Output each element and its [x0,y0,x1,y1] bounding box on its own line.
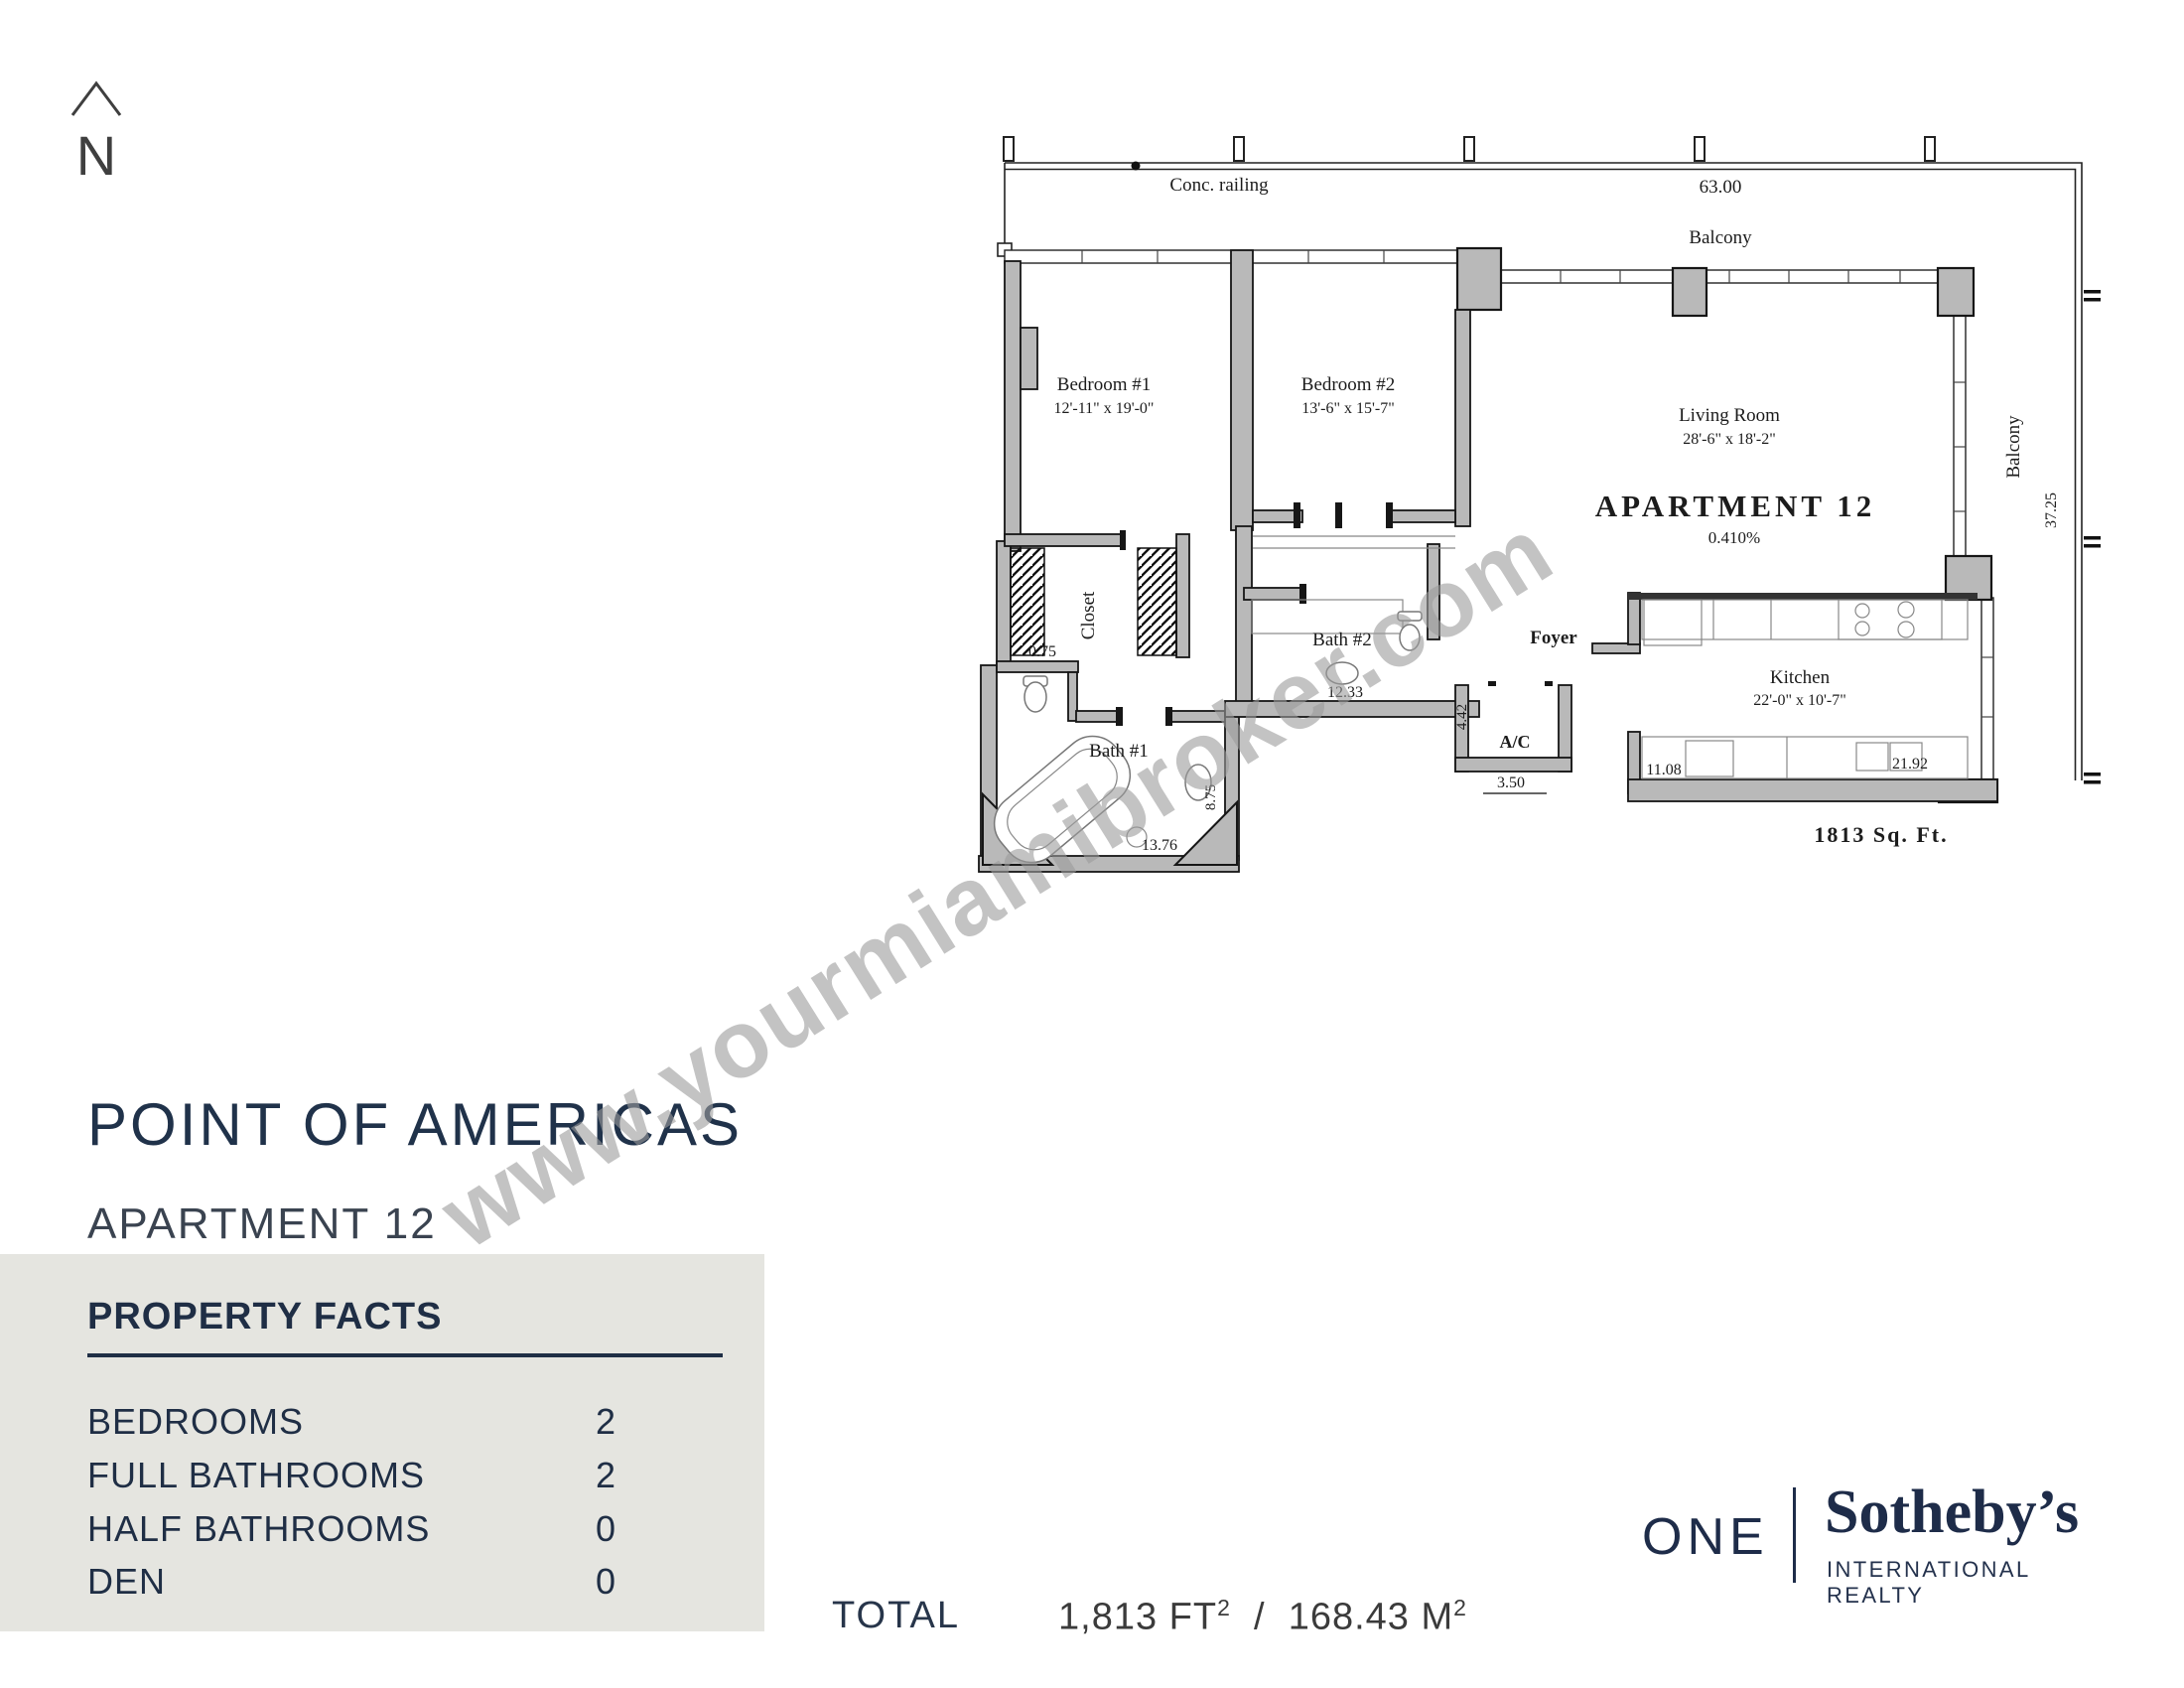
dim-ac-w: 3.50 [1497,774,1525,791]
label-bedroom2: Bedroom #2 [1301,374,1395,395]
label-bedroom1-dims: 12'-11" x 19'-0" [1054,400,1155,417]
fact-value: 2 [596,1401,616,1443]
brand-tagline: INTERNATIONAL REALTY [1827,1557,2134,1609]
dim-bath1-w: 13.76 [1142,837,1177,854]
total-sqft: 1,813 FT [1058,1597,1217,1638]
fact-value: 0 [596,1561,616,1603]
label-balcony-right: Balcony [2003,415,2024,479]
fact-value: 0 [596,1508,616,1550]
brand-logo: ONE Sotheby’s INTERNATIONAL REALTY [1638,1481,2134,1596]
dim-kitchen-l: 11.08 [1646,762,1681,778]
fact-label: HALF BATHROOMS [87,1508,430,1549]
label-ac: A/C [1500,732,1531,752]
total-label: TOTAL [832,1595,960,1637]
label-apartment: APARTMENT 12 [1595,489,1876,523]
sink-bath2 [1326,662,1358,684]
property-facts-rule [87,1353,723,1357]
label-living-dims: 28'-6" x 18'-2" [1683,431,1775,448]
total-sqft-sup: 2 [1217,1595,1231,1620]
vanity-bath2 [1252,600,1403,633]
label-living-room: Living Room [1679,405,1780,426]
dim-closet: 0.75 [1028,643,1056,660]
closet-shelves-left [1011,548,1044,655]
label-bath2: Bath #2 [1312,630,1372,650]
north-arrow-label: N [76,124,116,187]
total-sqm-sup: 2 [1453,1595,1467,1620]
dim-kitchen-r: 21.92 [1892,756,1928,773]
total-sqm: 168.43 M [1289,1597,1453,1638]
brand-divider [1793,1487,1796,1583]
fact-label: FULL BATHROOMS [87,1455,425,1495]
bath1-corner-right [1175,802,1237,865]
toilet-bath2 [1400,625,1420,650]
railing-joint-marks [2084,290,2101,784]
kitchen-dishwasher [1686,741,1733,776]
brand-one: ONE [1642,1507,1769,1567]
toilet-bath1 [1024,682,1046,712]
fact-row-full-bathrooms: FULL BATHROOMS 2 [87,1455,683,1496]
north-arrow: N [55,71,164,191]
fact-label: BEDROOMS [87,1401,304,1442]
label-closet: Closet [1078,591,1099,639]
label-dim-width: 63.00 [1700,177,1742,198]
fact-row-half-bathrooms: HALF BATHROOMS 0 [87,1508,683,1550]
label-foyer: Foyer [1530,628,1577,648]
dim-right: 37.25 [2043,492,2060,528]
label-conc-railing: Conc. railing [1169,175,1269,196]
floor-plan: Conc. railing 63.00 Balcony Bedroom #1 1… [973,79,2105,894]
closet-shelves-right [1138,548,1176,655]
fact-label: DEN [87,1561,166,1602]
north-arrow-chevron [72,83,120,115]
label-bedroom2-dims: 13'-6" x 15'-7" [1301,400,1394,417]
unit-title: APARTMENT 12 [87,1199,437,1249]
brand-name: Sotheby’s [1825,1477,2079,1548]
kitchen-sink-left [1856,743,1888,771]
label-balcony-top: Balcony [1689,227,1752,248]
dim-bath2: 12.33 [1327,684,1363,701]
label-kitchen: Kitchen [1770,667,1831,688]
property-facts-panel: PROPERTY FACTS BEDROOMS 2 FULL BATHROOMS… [0,1254,764,1631]
fact-value: 2 [596,1455,616,1496]
label-kitchen-dims: 22'-0" x 10'-7" [1753,692,1845,709]
columns [1457,248,1997,802]
fact-row-bedrooms: BEDROOMS 2 [87,1401,683,1443]
label-bath1: Bath #1 [1089,741,1149,762]
label-total-sqft-plan: 1813 Sq. Ft. [1814,822,1948,847]
label-percent: 0.410% [1708,528,1760,547]
balcony-railing [998,137,2101,784]
label-bedroom1: Bedroom #1 [1057,374,1151,395]
dim-ac-h: 4.42 [1454,704,1470,730]
toilet2-tank [1398,612,1422,621]
kitchen-stove [1839,600,1942,639]
total-value: 1,813 FT2 / 168.43 M2 [1058,1595,1467,1639]
total-separator: / [1254,1597,1266,1638]
kitchen-fridge [1644,600,1702,645]
building-title: POINT OF AMERICAS [87,1090,743,1159]
fact-row-den: DEN 0 [87,1561,683,1603]
property-facts-title: PROPERTY FACTS [87,1296,442,1338]
bedroom2-closet [1253,536,1455,548]
dim-bath1-h: 8.75 [1203,784,1219,810]
kitchen-counter-top [1642,600,1968,639]
